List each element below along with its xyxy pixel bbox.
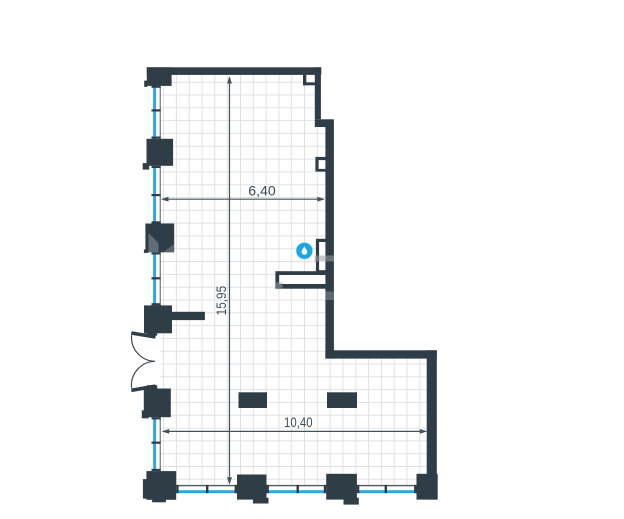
svg-text:6,40: 6,40 [248,183,276,199]
svg-text:15,95: 15,95 [213,286,229,316]
svg-text:10,40: 10,40 [284,414,313,430]
